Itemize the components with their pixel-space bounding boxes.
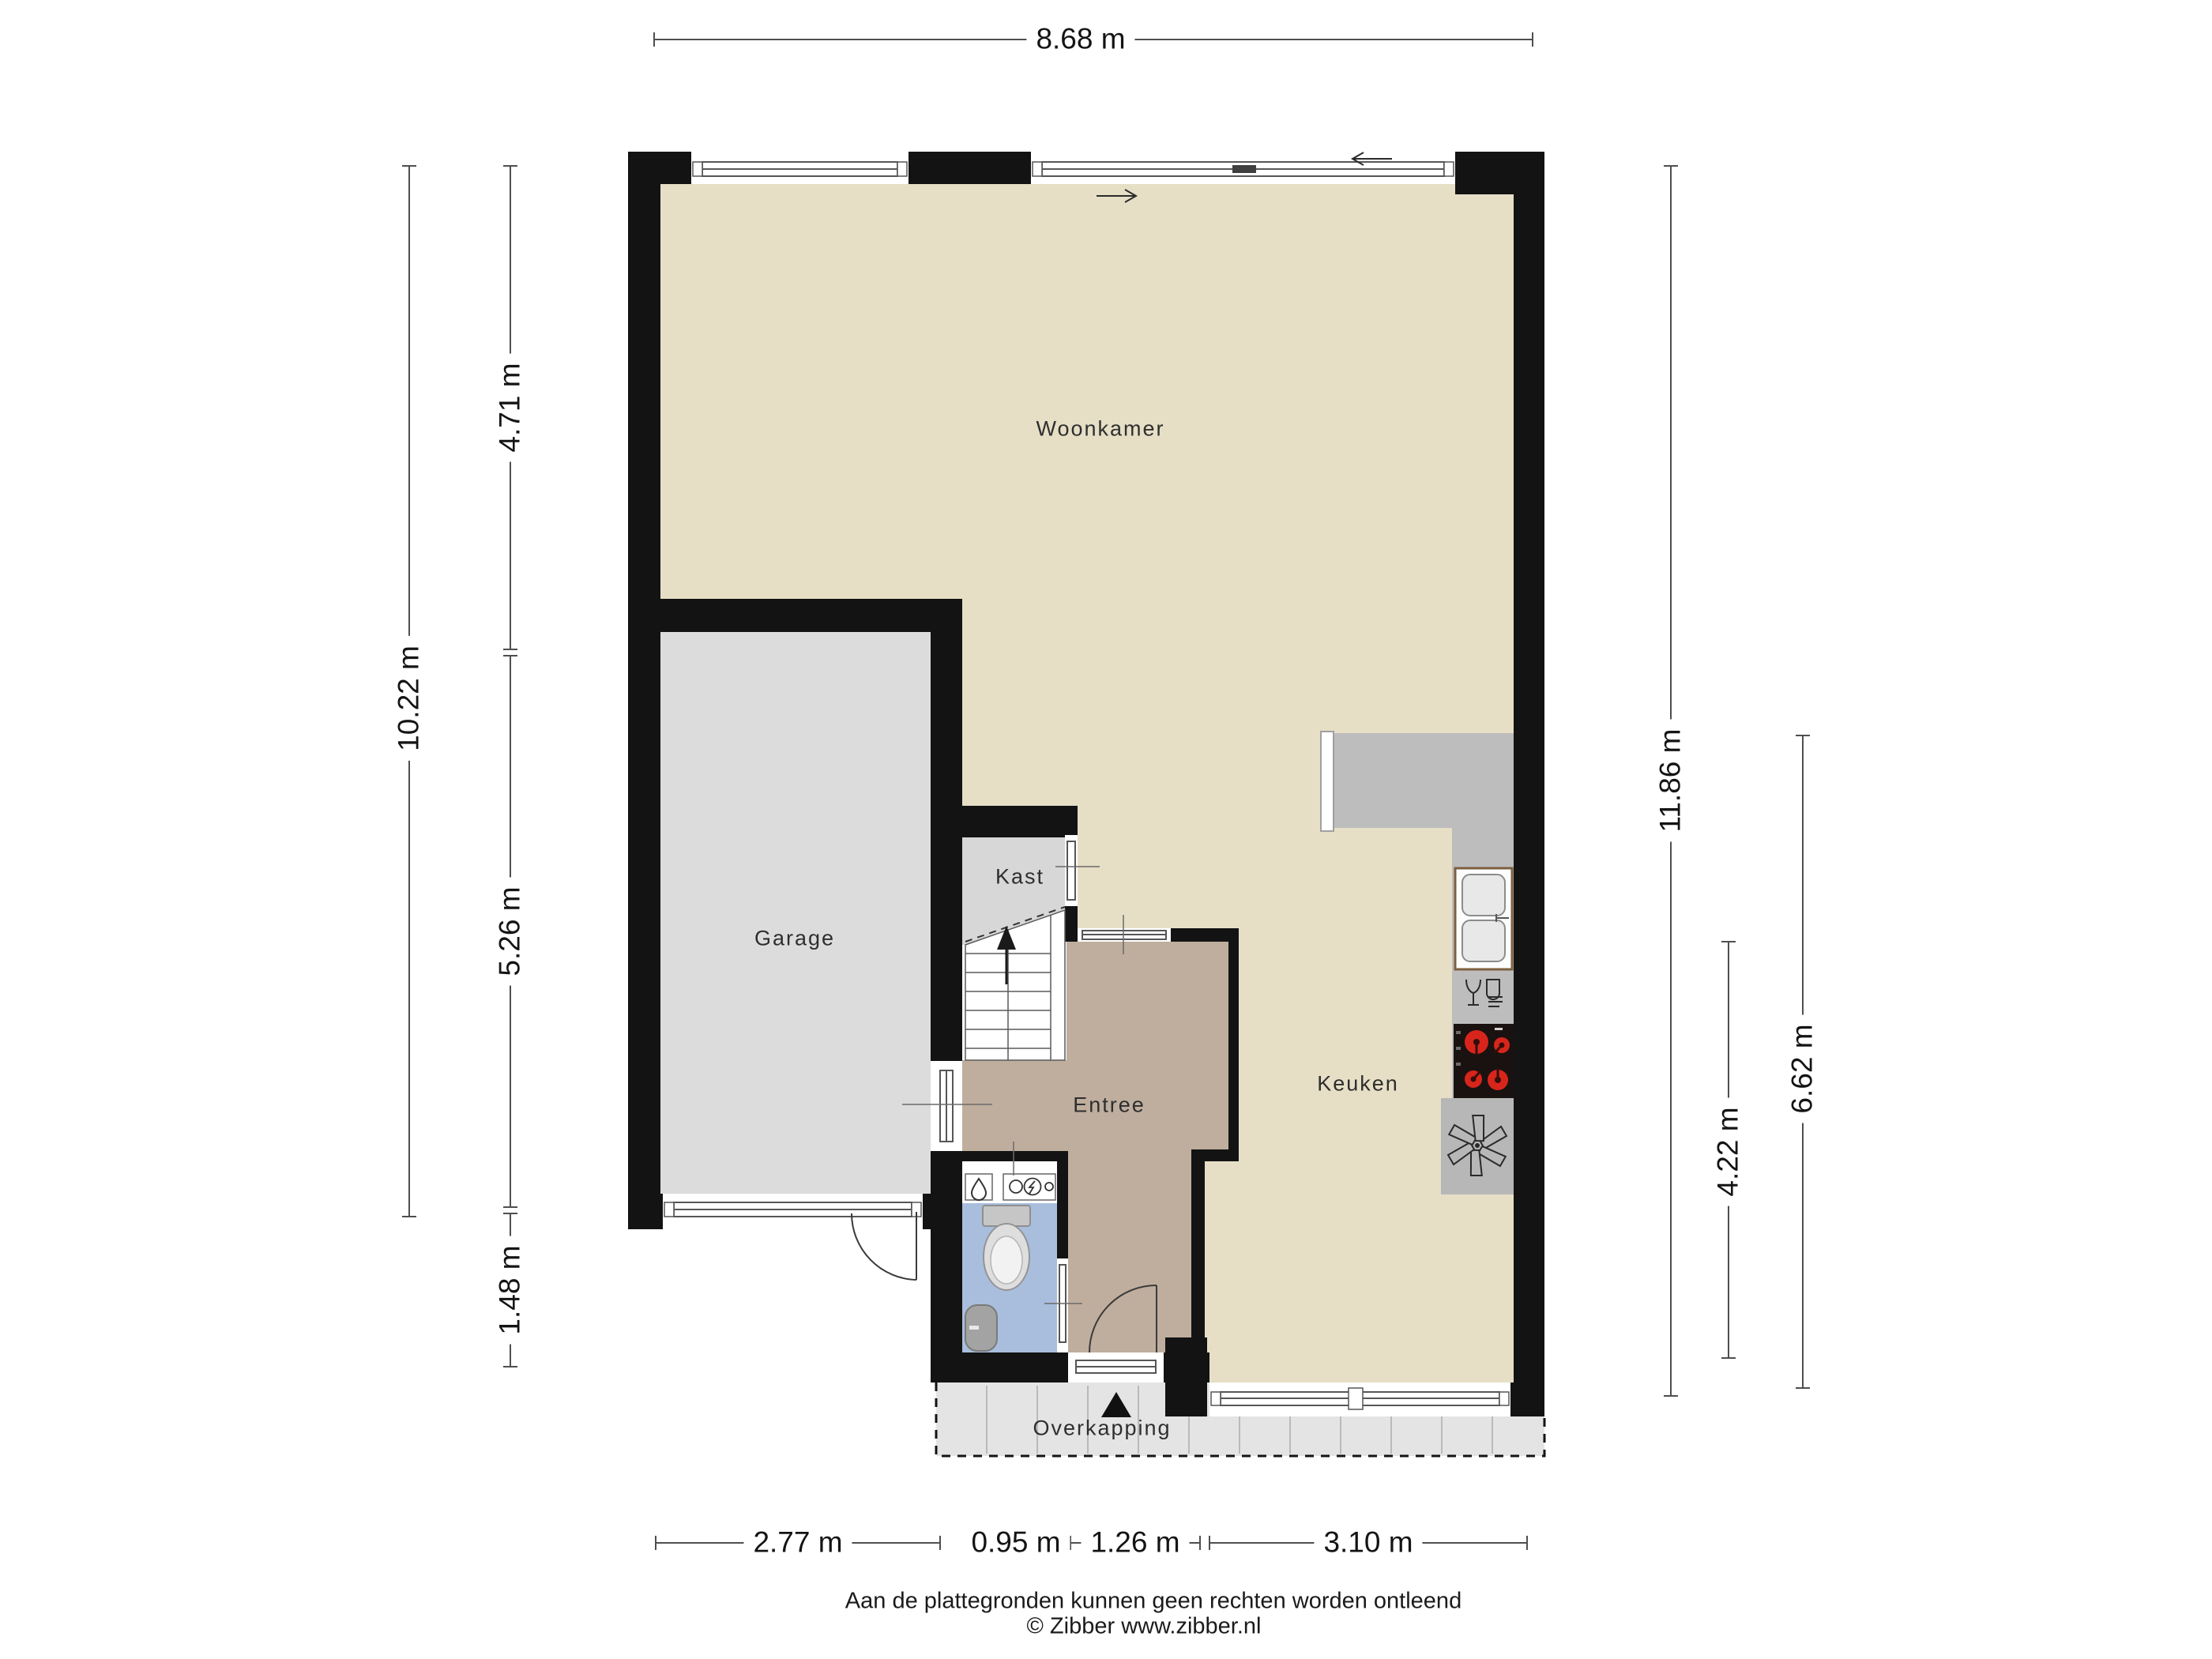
- wall-toilet-west: [931, 1151, 962, 1382]
- dim-right-total: 11.86 m: [1654, 720, 1688, 842]
- front-door-opening: [1068, 1352, 1164, 1382]
- dim-bottom-garage: 2.77 m: [743, 1526, 852, 1560]
- floor-keuken-strip: [1205, 1161, 1239, 1382]
- counter-end-panel: [1321, 732, 1334, 831]
- dim-bottom-kitchen: 3.10 m: [1314, 1526, 1422, 1560]
- dim-right-counter: 4.22 m: [1712, 1097, 1746, 1206]
- sink-icon: [1455, 868, 1512, 969]
- dim-left-middle: 5.26 m: [494, 877, 528, 985]
- window-entree-north: [1078, 928, 1171, 942]
- door-garage-entree: [931, 1061, 962, 1151]
- room-label-kast: Kast: [995, 865, 1044, 890]
- dim-left-lower: 1.48 m: [494, 1236, 528, 1344]
- wall-kast-north: [962, 806, 1078, 837]
- cooktop-icon: [1454, 1024, 1514, 1098]
- wall-entree-east: [1228, 928, 1239, 1151]
- floorplan-page: Woonkamer Garage Kast Entree Keuken Over…: [0, 0, 2212, 1659]
- floor-garage: [660, 632, 931, 1194]
- dim-bottom-entree: 1.26 m: [1081, 1526, 1189, 1560]
- sliding-door-overlap-mark: [1232, 165, 1256, 173]
- dim-right-kitchen: 6.62 m: [1786, 1014, 1820, 1123]
- room-label-overkapping: Overkapping: [1033, 1416, 1171, 1441]
- dim-bottom-toilet: 0.95 m: [961, 1526, 1070, 1560]
- window-top-west: [691, 152, 908, 184]
- garage-door: [663, 1194, 923, 1229]
- floor-woonkamer: [660, 184, 1514, 632]
- floorplan-drawing: [0, 0, 2212, 1659]
- room-label-keuken: Keuken: [1317, 1072, 1399, 1097]
- window-keuken-south: [1209, 1382, 1510, 1416]
- floor-entree-south: [1068, 1149, 1191, 1352]
- floor-entree-west: [962, 1060, 1066, 1151]
- room-label-woonkamer: Woonkamer: [1036, 417, 1164, 442]
- floor-entree: [1066, 942, 1228, 1151]
- wall-garage-east: [931, 599, 962, 1061]
- wall-east: [1514, 152, 1544, 1416]
- wall-woonkamer-garage: [628, 599, 962, 632]
- room-label-garage: Garage: [754, 927, 835, 951]
- room-label-entree: Entree: [1073, 1093, 1145, 1118]
- dim-left-upper: 4.71 m: [494, 353, 528, 461]
- door-kast: [1065, 835, 1078, 906]
- wall-west: [628, 152, 660, 1229]
- footer-credit: © Zibber www.zibber.nl: [1027, 1614, 1262, 1640]
- footer-disclaimer: Aan de plattegronden kunnen geen rechten…: [845, 1589, 1461, 1615]
- counter-top-run: [1321, 733, 1514, 828]
- wall-toilet-north: [962, 1151, 1068, 1161]
- dim-left-total: 10.22 m: [393, 636, 427, 761]
- electric-meter-icon: [1003, 1174, 1055, 1200]
- floor-open-area2: [1078, 837, 1514, 942]
- dim-top-width: 8.68 m: [1026, 23, 1134, 57]
- wall-south-entree: [931, 1352, 1068, 1382]
- wall-toilet-east: [1057, 1161, 1068, 1258]
- sliding-door-top: [1031, 152, 1455, 184]
- kitchen-appliances: [1446, 868, 1514, 1180]
